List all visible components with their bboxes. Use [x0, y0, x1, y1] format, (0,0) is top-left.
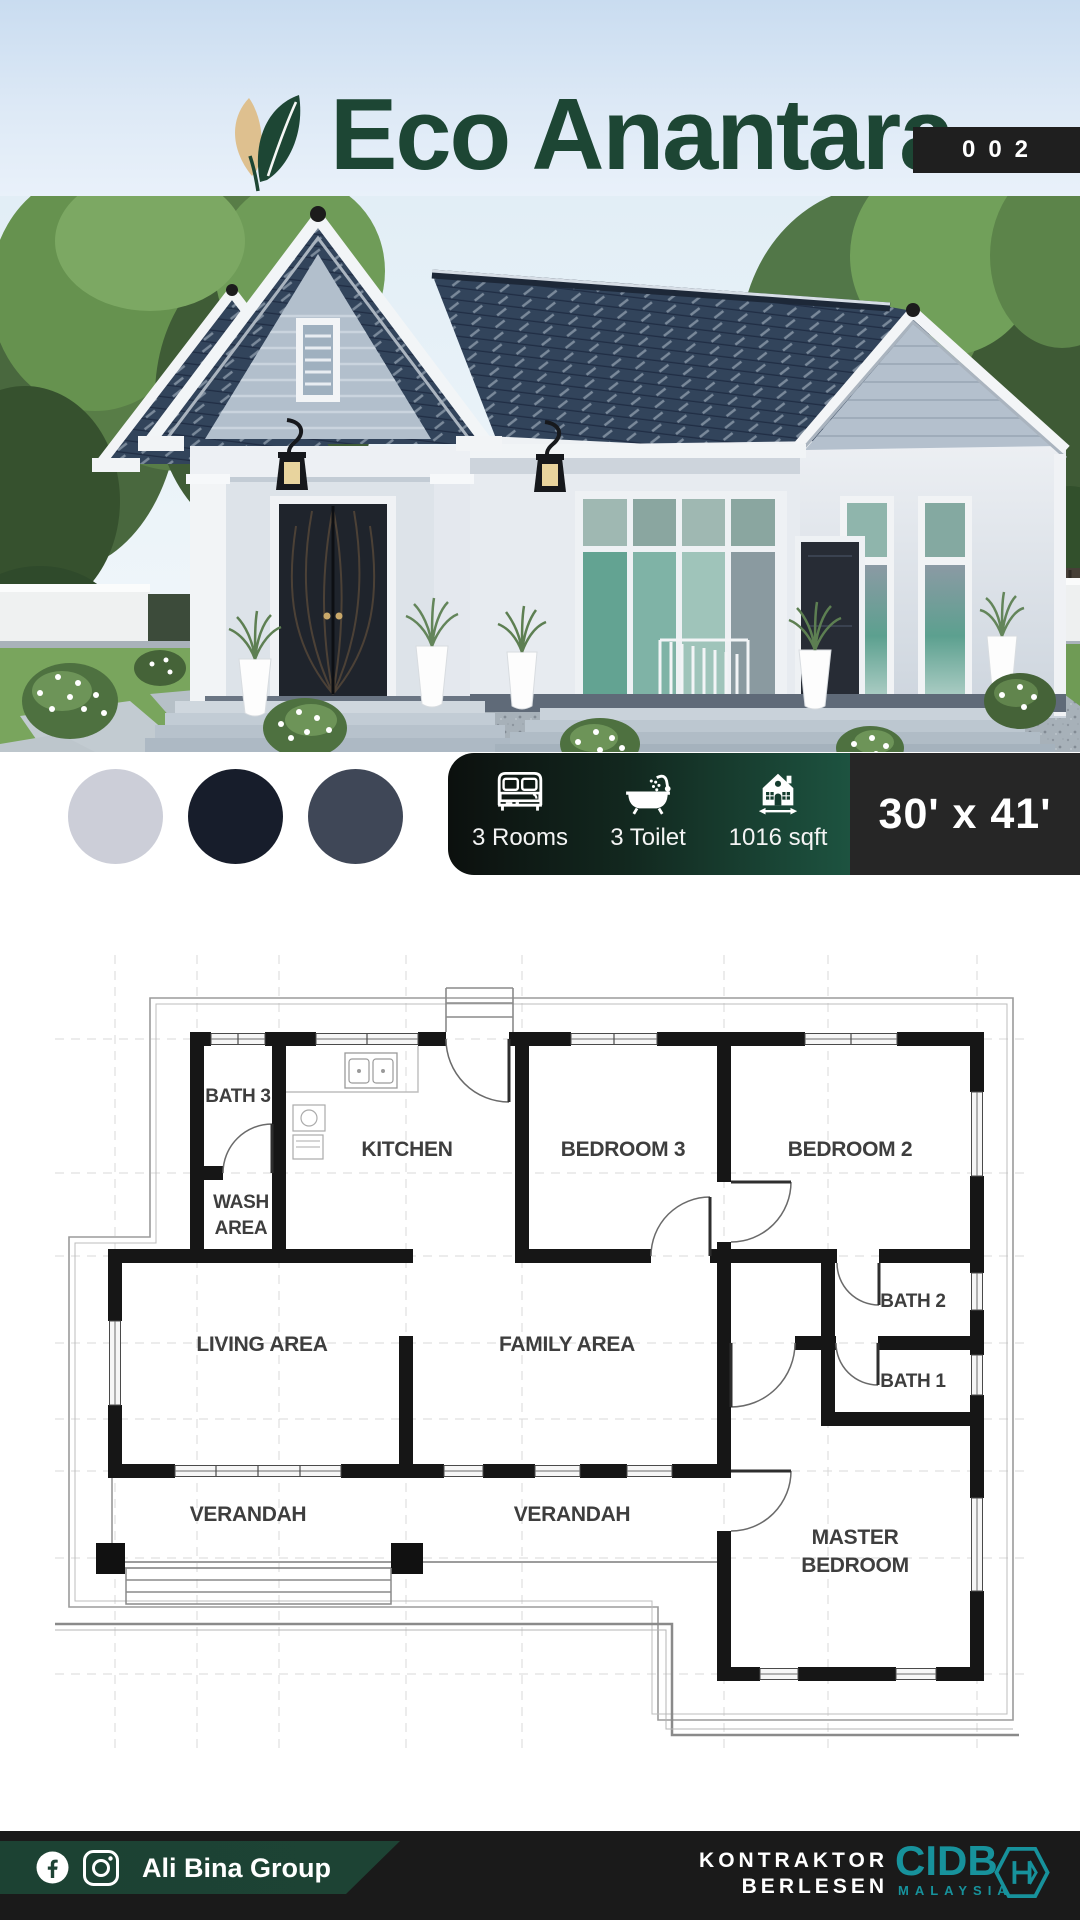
label-bedroom3: BEDROOM 3 — [561, 1138, 685, 1161]
license-line2: BERLESEN — [699, 1874, 888, 1900]
company-name: Ali Bina Group — [142, 1853, 331, 1884]
area-label: 1016 sqft — [716, 824, 840, 852]
cidb-logo-icon — [993, 1846, 1051, 1904]
license-line1: KONTRAKTOR — [699, 1848, 888, 1874]
house-render — [0, 196, 1080, 752]
house-render-illustration — [0, 196, 1080, 752]
spec-rooms: 3 Rooms — [458, 753, 582, 875]
toilet-label: 3 Toilet — [586, 824, 710, 852]
label-living: LIVING AREA — [196, 1333, 327, 1356]
leaf-logo-icon — [222, 90, 318, 199]
facebook-icon[interactable] — [36, 1851, 69, 1889]
label-kitchen: KITCHEN — [361, 1138, 452, 1161]
label-bedroom2: BEDROOM 2 — [788, 1138, 912, 1161]
front-door — [270, 496, 396, 698]
label-bath2: BATH 2 — [880, 1291, 945, 1312]
footer: Ali Bina Group KONTRAKTOR BERLESEN CIDB … — [0, 1831, 1080, 1920]
label-verandah-right: VERANDAH — [514, 1503, 631, 1526]
label-master-1: MASTER — [812, 1526, 899, 1549]
label-wash-1: WASH — [213, 1192, 269, 1213]
floor-plan: BATH 3 KITCHEN BEDROOM 3 BEDROOM 2 WASH … — [55, 955, 1025, 1755]
label-wash-2: AREA — [215, 1218, 268, 1239]
brand-title: Eco Anantara — [330, 78, 953, 193]
dimensions-box: 30' x 41' — [850, 753, 1080, 875]
cidb-wordmark: CIDB — [895, 1841, 998, 1881]
label-family: FAMILY AREA — [499, 1333, 635, 1356]
rooms-label: 3 Rooms — [458, 824, 582, 852]
color-swatch-light-gray — [68, 769, 163, 864]
label-verandah-left: VERANDAH — [190, 1503, 307, 1526]
specs-bar: 3 Rooms 3 Toilet — [448, 753, 850, 875]
label-bath1: BATH 1 — [880, 1371, 946, 1392]
bed-icon — [494, 769, 546, 815]
label-master-2: BEDROOM — [801, 1554, 909, 1577]
spec-toilet: 3 Toilet — [586, 753, 710, 875]
header: Eco Anantara 002 — [0, 0, 1080, 196]
house-width-icon — [752, 769, 804, 815]
color-swatch-dark-navy — [188, 769, 283, 864]
footer-banner: Ali Bina Group — [0, 1841, 400, 1894]
model-number-badge: 002 — [913, 127, 1080, 173]
instagram-icon[interactable] — [82, 1849, 120, 1892]
poster-page: Eco Anantara 002 — [0, 0, 1080, 1920]
bathtub-icon — [622, 769, 674, 815]
color-swatch-slate — [308, 769, 403, 864]
spec-area: 1016 sqft — [716, 753, 840, 875]
label-bath3: BATH 3 — [205, 1086, 270, 1107]
license-text: KONTRAKTOR BERLESEN — [699, 1848, 888, 1900]
